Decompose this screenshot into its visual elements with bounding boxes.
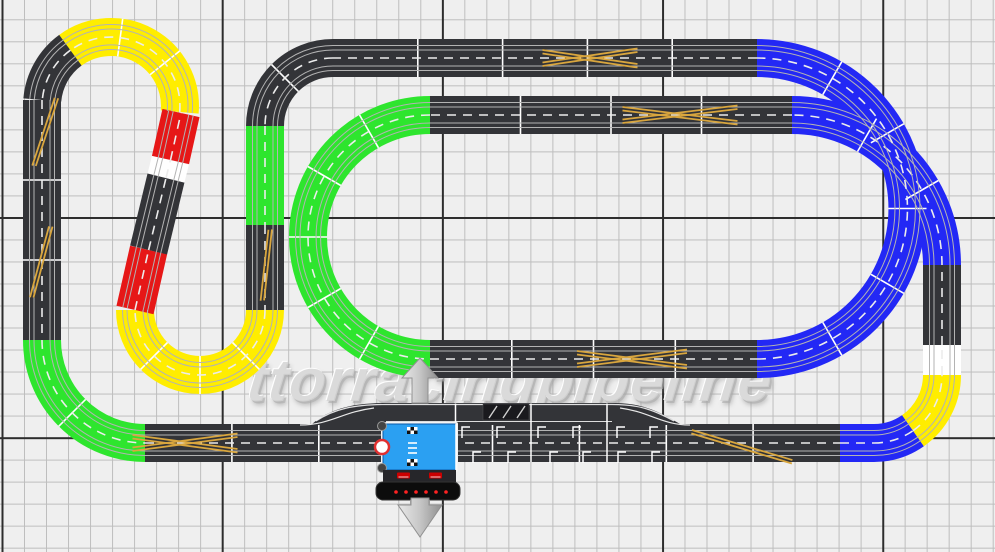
- led-indicator: [394, 490, 398, 494]
- brand-chip: [429, 473, 442, 479]
- led-indicator: [434, 490, 438, 494]
- screw-icon: [378, 422, 387, 431]
- controller-bar: [383, 470, 456, 482]
- brand-chip: [397, 473, 410, 479]
- track-layout[interactable]: [0, 0, 995, 552]
- pit-building-icon: [483, 404, 529, 420]
- track-piece-blue[interactable]: [874, 431, 913, 443]
- powerbase-top[interactable]: [383, 424, 456, 470]
- direction-arrow-down[interactable]: [398, 498, 442, 537]
- powerbase[interactable]: [375, 422, 460, 508]
- led-indicator: [424, 490, 428, 494]
- start-button[interactable]: [375, 440, 389, 454]
- checkered-flag-icon: [407, 427, 418, 434]
- checkered-flag-icon: [407, 459, 418, 466]
- track-pieces[interactable]: [42, 37, 942, 443]
- design-canvas[interactable]: ttorracingpipeline: [0, 0, 995, 552]
- led-indicator: [444, 490, 448, 494]
- led-indicator: [414, 490, 418, 494]
- led-indicator: [404, 490, 408, 494]
